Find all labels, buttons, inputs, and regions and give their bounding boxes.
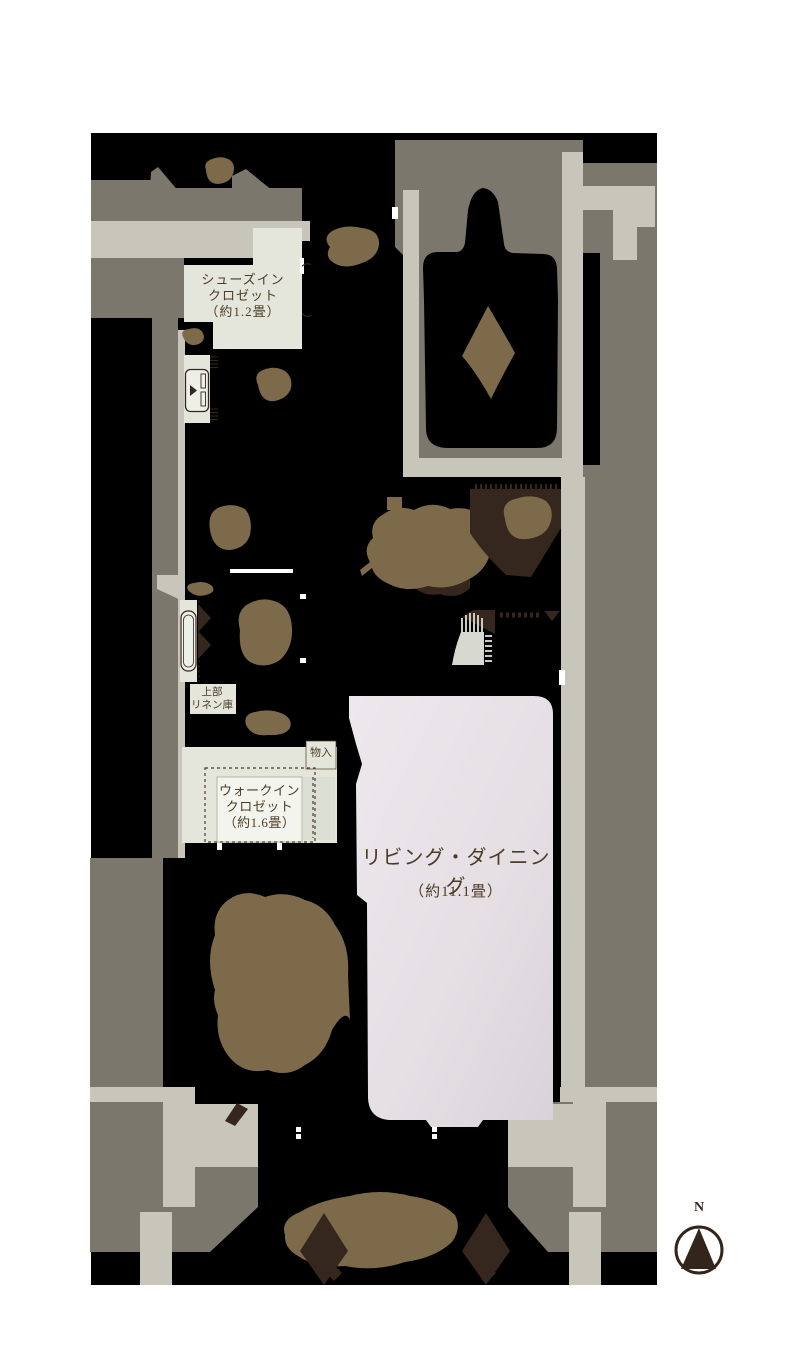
label-upper-linen: 上部 リネン庫 — [188, 687, 236, 712]
living-dining-room — [349, 696, 553, 1127]
floor-plan-graphic — [0, 0, 800, 1362]
plant-hall — [209, 505, 250, 550]
floor-plan-canvas: シューズイン クロゼット （約1.2畳） 上部 リネン庫 物入 ウォークイン ク… — [0, 0, 800, 1362]
compass-north-label: N — [687, 1200, 711, 1216]
label-walk-in-closet: ウォークイン クロゼット （約1.6畳） — [215, 783, 304, 831]
label-shoes-in-closet: シューズイン クロゼット （約1.2畳） — [184, 272, 302, 320]
kitchen-small-box — [387, 497, 402, 510]
compass-icon — [676, 1227, 722, 1273]
plant-bath-right — [239, 599, 292, 665]
label-living-dining-size: （約11.1畳） — [358, 880, 554, 901]
label-storage: 物入 — [305, 747, 337, 760]
